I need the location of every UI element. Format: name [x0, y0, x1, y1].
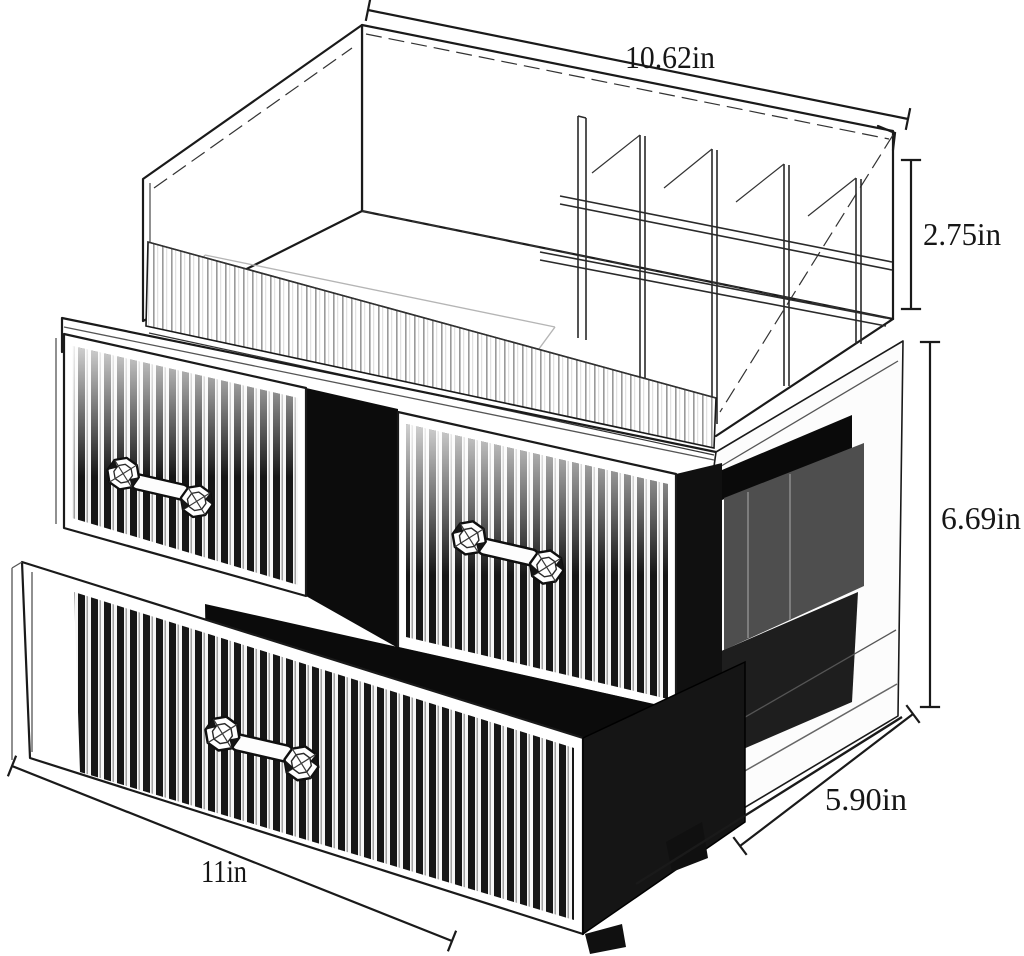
- dim-label-body-height: 6.69in: [941, 500, 1021, 536]
- dim-label-bottom-width: 11in: [201, 853, 247, 889]
- drawer-cavity-center: [306, 388, 398, 648]
- acrylic-organizer-drawing: 10.62in 2.75in 6.69in 5.90in 11in: [0, 0, 1024, 956]
- dimension-body-height: 6.69in: [921, 342, 1021, 707]
- dim-label-top-width: 10.62in: [625, 39, 715, 75]
- middle-left-drawer: [56, 334, 306, 596]
- product-dimension-diagram: 10.62in 2.75in 6.69in 5.90in 11in: [0, 0, 1024, 956]
- dim-label-depth: 5.90in: [825, 781, 907, 817]
- dimension-top-section-height: 2.75in: [902, 160, 1001, 309]
- dim-label-top-section-height: 2.75in: [923, 216, 1001, 252]
- drawer-cavity-right: [676, 463, 722, 710]
